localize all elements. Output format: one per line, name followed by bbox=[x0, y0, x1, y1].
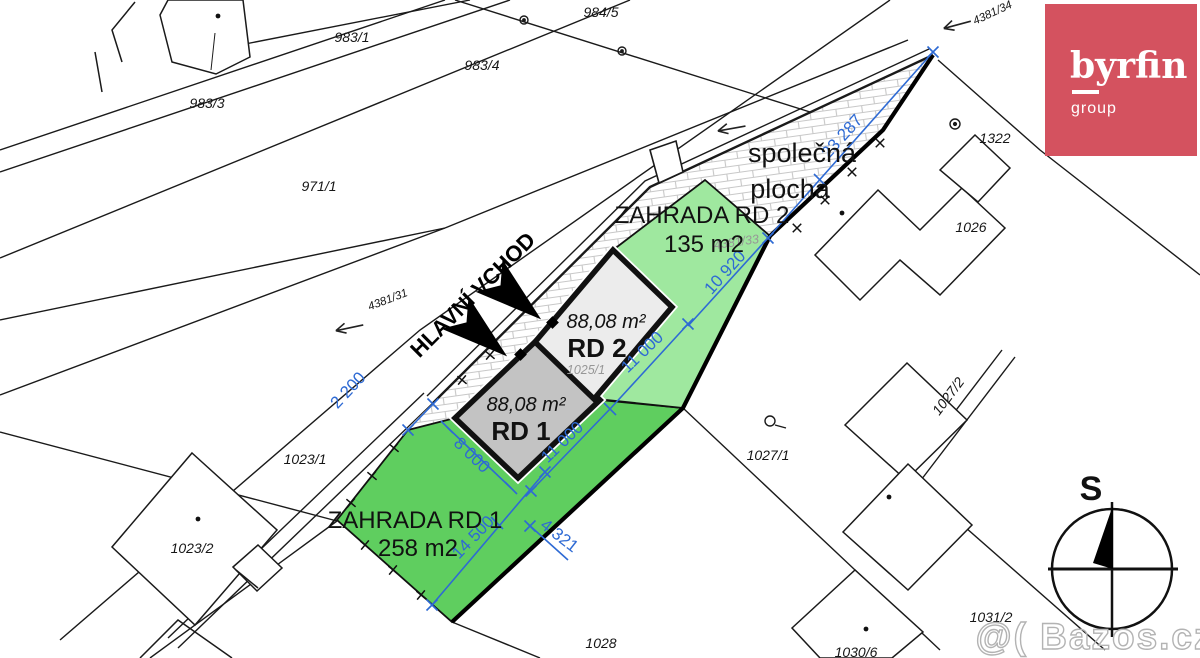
parcel-4381-34: 4381/34 bbox=[971, 0, 1014, 28]
parcel-1322: 1322 bbox=[979, 130, 1010, 146]
parcel-984-5: 984/5 bbox=[583, 4, 618, 20]
house1-name: RD 1 bbox=[491, 416, 550, 446]
parcel-983-4: 983/4 bbox=[464, 57, 499, 73]
parcel-1026: 1026 bbox=[955, 219, 986, 235]
dim-2200: 2 200 bbox=[327, 368, 370, 412]
cadastral-site-plan: 2 200 8 000 11 000 11 000 14 500 4 321 1… bbox=[0, 0, 1200, 658]
parcel-983-1: 983/1 bbox=[334, 29, 369, 45]
garden1-name: ZAHRADA RD 1 bbox=[328, 507, 503, 534]
road-arrow-2 bbox=[717, 121, 746, 136]
parcel-1023-2: 1023/2 bbox=[171, 540, 214, 556]
logo-dash-icon bbox=[1072, 90, 1099, 94]
parcel-1027-1: 1027/1 bbox=[747, 447, 790, 463]
compass: S bbox=[1048, 470, 1178, 637]
logo-brand-text: byrfin bbox=[1070, 45, 1187, 87]
parcel-1028: 1028 bbox=[585, 635, 616, 651]
common-area-label-1: společná bbox=[748, 138, 857, 168]
garden2-area: 135 m2 bbox=[664, 231, 744, 258]
parcel-983-3: 983/3 bbox=[189, 95, 224, 111]
road-arrow-1 bbox=[335, 320, 364, 336]
logo-subtitle-text: group bbox=[1071, 100, 1117, 117]
compass-needle-icon bbox=[1093, 505, 1113, 569]
watermark-text: @( Bazos.cz bbox=[975, 616, 1200, 657]
parcel-4381-31: 4381/31 bbox=[366, 287, 409, 313]
compass-north-label: S bbox=[1080, 470, 1103, 508]
garden1-area: 258 m2 bbox=[378, 535, 458, 562]
parcel-1023-1: 1023/1 bbox=[284, 451, 327, 467]
site-plan-svg: 2 200 8 000 11 000 11 000 14 500 4 321 1… bbox=[0, 0, 1200, 658]
house2-name: RD 2 bbox=[567, 333, 626, 363]
parcel-1025-1: 1025/1 bbox=[567, 363, 605, 377]
parcel-971-1: 971/1 bbox=[301, 178, 336, 194]
house1-area: 88,08 m² bbox=[487, 394, 567, 416]
road-arrow-3 bbox=[942, 16, 972, 33]
house2-area: 88,08 m² bbox=[567, 311, 647, 333]
byrfin-logo: byrfin group bbox=[1045, 4, 1197, 156]
parcel-1030-6: 1030/6 bbox=[835, 644, 878, 658]
common-area-label-2: plocha bbox=[750, 174, 831, 204]
garden2-name: ZAHRADA RD 2 bbox=[615, 202, 790, 229]
